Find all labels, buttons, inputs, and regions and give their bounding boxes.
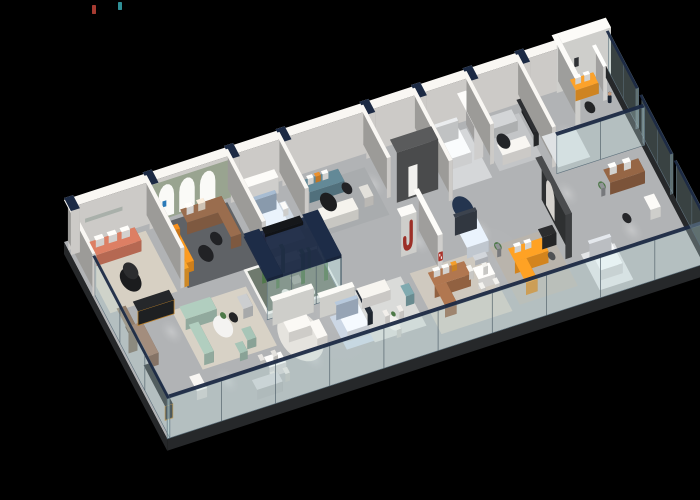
isometric-showroom-floorplan [0, 0, 700, 500]
red-logo-chip [438, 251, 443, 261]
showroom-render-stage [0, 0, 700, 500]
blue-logo-chip [162, 200, 166, 207]
wall-frame-small [574, 57, 579, 67]
sales-person-figure [608, 92, 612, 103]
rooftop-sign-red [92, 5, 96, 14]
rooftop-sign-teal [118, 2, 122, 10]
